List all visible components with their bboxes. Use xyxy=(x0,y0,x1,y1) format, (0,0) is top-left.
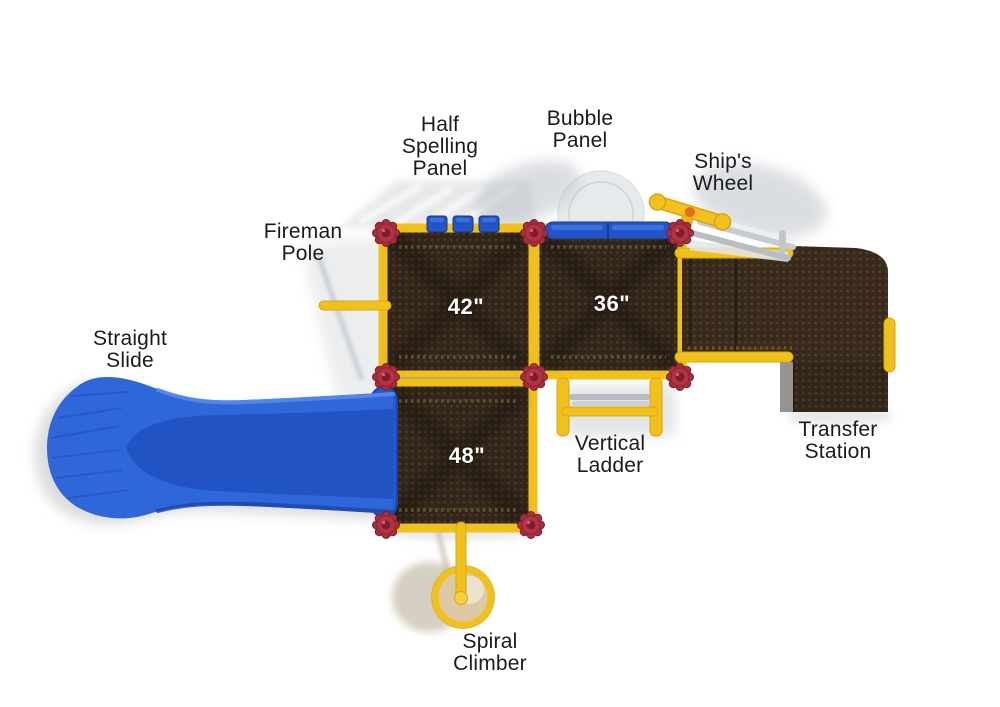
half-spelling-panel-graphic xyxy=(427,216,499,232)
deck-36-size-label: 36" xyxy=(594,291,630,317)
callout-ships-wheel: Ship's Wheel xyxy=(693,151,754,195)
deck-48-size-label: 48" xyxy=(449,443,485,469)
callout-transfer-station: Transfer Station xyxy=(798,419,877,463)
deck-42-size-label: 42" xyxy=(448,294,484,320)
callout-half-spelling-panel: Half Spelling Panel xyxy=(402,114,478,180)
callout-vertical-ladder: Vertical Ladder xyxy=(575,433,645,477)
playground-top-view-diagram: Half Spelling Panel Bubble Panel Ship's … xyxy=(0,0,1000,707)
callout-spiral-climber: Spiral Climber xyxy=(453,631,527,675)
fireman-pole-graphic xyxy=(319,301,391,310)
straight-slide-graphic xyxy=(47,377,397,518)
callout-straight-slide: Straight Slide xyxy=(93,328,167,372)
bubble-panel-graphic xyxy=(545,222,673,239)
transfer-handle-graphic xyxy=(884,318,895,372)
transfer-station-graphic xyxy=(675,246,888,412)
callout-bubble-panel: Bubble Panel xyxy=(547,108,614,152)
callout-fireman-pole: Fireman Pole xyxy=(264,221,342,265)
